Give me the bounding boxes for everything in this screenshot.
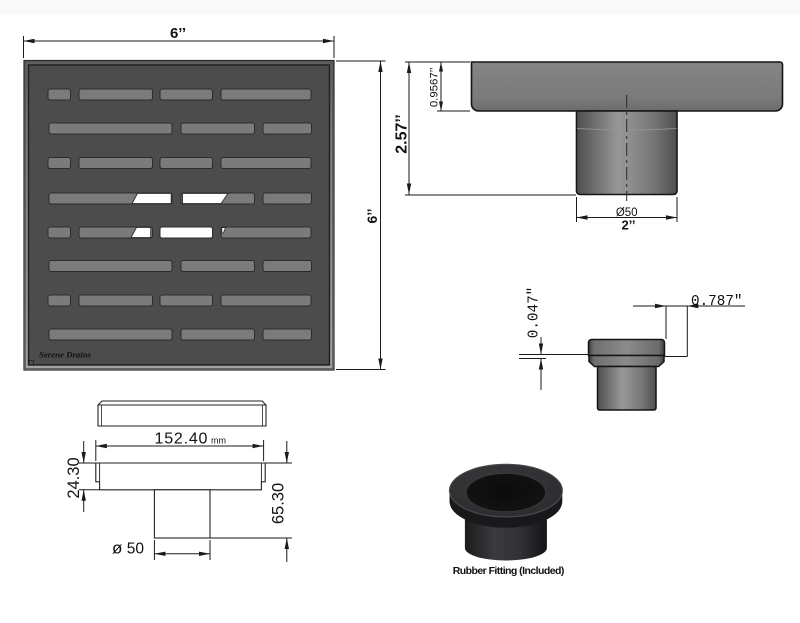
svg-text:65.30: 65.30: [270, 483, 288, 524]
svg-text:0.047": 0.047": [527, 287, 543, 338]
svg-text:Rubber Fitting (Included): Rubber Fitting (Included): [453, 565, 564, 577]
svg-text:152.40: 152.40: [155, 431, 209, 448]
svg-text:ø 50: ø 50: [112, 539, 144, 558]
svg-text:mm: mm: [211, 436, 226, 446]
svg-text:0.787": 0.787": [691, 294, 742, 310]
svg-text:24.30: 24.30: [65, 457, 83, 498]
svg-text:Serene Drains: Serene Drains: [39, 350, 92, 360]
svg-text:2’’: 2’’: [622, 218, 636, 233]
svg-text:0.9567’’: 0.9567’’: [429, 67, 441, 107]
svg-text:2.57’’: 2.57’’: [394, 114, 411, 153]
svg-text:6’’: 6’’: [364, 208, 380, 223]
svg-text:6’’: 6’’: [170, 25, 186, 42]
